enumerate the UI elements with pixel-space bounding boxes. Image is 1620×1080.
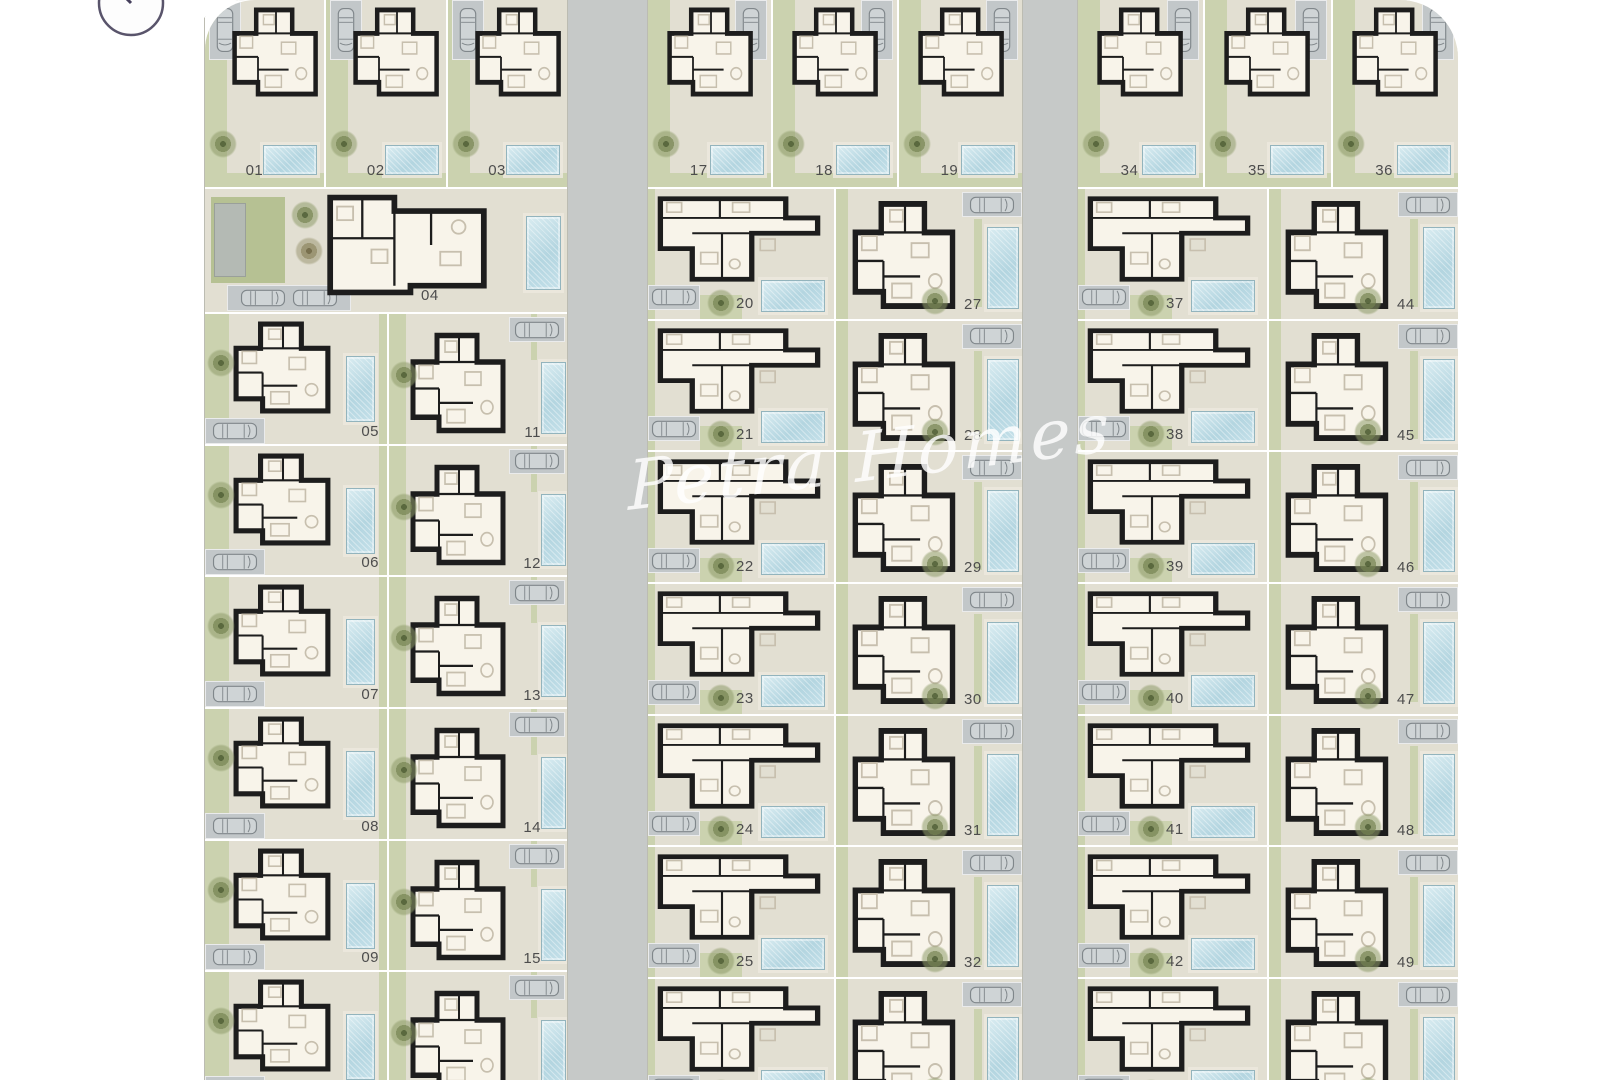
tree-icon — [1353, 681, 1383, 711]
car-icon — [212, 947, 258, 967]
tree-icon — [206, 348, 236, 378]
tree-icon — [1136, 683, 1166, 713]
plot-cell: 09 — [205, 841, 387, 971]
pool — [987, 1017, 1019, 1080]
plot-number-label: 14 — [523, 819, 541, 836]
plot-number-label: 34 — [1121, 162, 1139, 179]
plot-number-label: 29 — [964, 559, 982, 576]
plot-number-label: 01 — [246, 162, 264, 179]
house-footprint — [1096, 5, 1186, 99]
driveway — [1398, 982, 1458, 1007]
tree-icon — [206, 743, 236, 773]
plot-cell: 25 — [648, 847, 834, 977]
driveway — [648, 285, 700, 310]
plot-number-label: 37 — [1166, 295, 1184, 312]
plot-cell: 04 — [205, 189, 567, 312]
plot-cell: 49 — [1269, 847, 1458, 977]
plot-cell: 02 — [326, 0, 445, 187]
car-icon — [651, 419, 697, 439]
plot-cell: 05 — [205, 314, 387, 444]
plot-number-label: 13 — [523, 687, 541, 704]
house-footprint — [1351, 5, 1441, 99]
plot-number-label: 41 — [1166, 821, 1184, 838]
car-icon — [969, 326, 1015, 346]
house-footprint — [352, 5, 442, 99]
plot-cell — [1269, 979, 1458, 1080]
car-icon — [514, 320, 560, 340]
garden-strip — [974, 351, 982, 439]
tree-icon — [206, 480, 236, 510]
plot-number-label: 23 — [736, 690, 754, 707]
plot-cell: 32 — [836, 847, 1022, 977]
plot-cell: 39 — [1078, 452, 1267, 582]
tree-icon — [902, 129, 932, 159]
plot-number-label: 19 — [941, 162, 959, 179]
pool — [346, 1014, 375, 1080]
pool — [1423, 885, 1455, 967]
plot-number-label: 08 — [361, 818, 379, 835]
plot-cell: 46 — [1269, 452, 1458, 582]
car-icon — [1081, 551, 1127, 571]
car-icon — [1405, 721, 1451, 741]
driveway — [962, 850, 1022, 875]
plot-cell: 36 — [1333, 0, 1458, 187]
plot-number-label: 02 — [367, 162, 385, 179]
house-footprint — [1084, 193, 1254, 285]
pool — [987, 227, 1019, 309]
plot-cell: 06 — [205, 446, 387, 576]
tree-icon — [920, 286, 950, 316]
driveway — [1398, 455, 1458, 480]
column-plots-20-26: 20 21 22 23 — [648, 189, 834, 1080]
house-footprint — [231, 5, 321, 99]
pool — [987, 885, 1019, 967]
plot-cell: 24 — [648, 716, 834, 846]
plot-number-label: 11 — [524, 424, 541, 441]
plot-cell: 27 — [836, 189, 1022, 319]
garden-strip — [470, 173, 567, 187]
garden-strip — [1410, 746, 1418, 834]
plot-cell: 11 — [389, 314, 567, 444]
plot-cell: 03 — [448, 0, 567, 187]
pool — [1423, 227, 1455, 309]
tree-icon — [291, 233, 327, 269]
plot-cell — [1078, 979, 1267, 1080]
plot-cell: 10 — [205, 972, 387, 1080]
garden-strip — [974, 1009, 982, 1080]
plot-number-label: 47 — [1397, 691, 1415, 708]
plot-number-label: 27 — [964, 296, 982, 313]
plot-number-label: 32 — [964, 954, 982, 971]
garden-strip — [1269, 189, 1281, 319]
car-icon — [514, 846, 560, 866]
garden-strip — [1355, 173, 1458, 187]
house-footprint — [654, 983, 824, 1075]
left-grid: 05 06 07 08 — [205, 314, 567, 1080]
plot-cell: 31 — [836, 716, 1022, 846]
tree-icon — [1136, 551, 1166, 581]
house-footprint — [321, 193, 493, 297]
car-icon — [969, 458, 1015, 478]
tree-icon — [1208, 129, 1238, 159]
plot-number-label: 05 — [361, 423, 379, 440]
garden-strip — [379, 314, 387, 444]
plot-number-label: 15 — [523, 950, 541, 967]
column-plots-05-10: 05 06 07 08 — [205, 314, 387, 1080]
house-footprint — [232, 977, 334, 1074]
garden-strip — [836, 847, 848, 977]
pool — [987, 490, 1019, 572]
house-footprint — [1084, 983, 1254, 1075]
house-footprint — [1084, 720, 1254, 812]
driveway — [1078, 548, 1130, 573]
plot-number-label: 40 — [1166, 690, 1184, 707]
plot-cell: 14 — [389, 709, 567, 839]
car-icon — [1405, 590, 1451, 610]
driveway — [648, 548, 700, 573]
house-footprint — [474, 5, 564, 99]
driveway — [962, 587, 1022, 612]
plot-cell: 45 — [1269, 321, 1458, 451]
garden-strip — [348, 173, 445, 187]
tree-icon — [287, 197, 323, 233]
driveway — [1078, 680, 1130, 705]
car-icon — [651, 814, 697, 834]
garden-strip — [836, 321, 848, 451]
pool — [1423, 622, 1455, 704]
garden-strip — [974, 746, 982, 834]
plot-number-label: 48 — [1397, 822, 1415, 839]
car-icon — [1081, 419, 1127, 439]
plot-cell — [648, 979, 834, 1080]
plot-number-label: 07 — [361, 686, 379, 703]
car-icon — [514, 978, 560, 998]
compass-north-icon — [94, 0, 168, 40]
house-footprint — [409, 330, 509, 436]
tree-icon — [208, 129, 238, 159]
pool — [346, 751, 375, 817]
garage — [214, 203, 246, 277]
garden-strip — [1100, 173, 1203, 187]
garden-strip — [974, 614, 982, 702]
driveway — [509, 317, 565, 342]
tree-icon — [1081, 129, 1111, 159]
pool — [1423, 1017, 1455, 1080]
driveway — [648, 943, 700, 968]
house-footprint — [409, 857, 509, 963]
house-footprint — [1084, 456, 1254, 548]
car-icon — [212, 421, 258, 441]
house-footprint — [666, 5, 756, 99]
tree-icon — [920, 681, 950, 711]
tree-icon — [389, 360, 419, 390]
house-footprint — [232, 714, 334, 811]
plot-number-label: 49 — [1397, 954, 1415, 971]
plot-cell: 29 — [836, 452, 1022, 582]
plot-number-label: 42 — [1166, 953, 1184, 970]
car-icon — [1405, 195, 1451, 215]
pool — [346, 619, 375, 685]
house-footprint — [232, 582, 334, 679]
plot-cell: 35 — [1205, 0, 1330, 187]
plot-number-label: 30 — [964, 691, 982, 708]
car-icon — [651, 287, 697, 307]
garden-strip — [974, 877, 982, 965]
pool — [1423, 754, 1455, 836]
plot-number-label: 46 — [1397, 559, 1415, 576]
house-footprint — [232, 846, 334, 943]
plot-number-label: 45 — [1397, 427, 1415, 444]
plot-cell: 48 — [1269, 716, 1458, 846]
car-icon — [1405, 326, 1451, 346]
driveway — [648, 680, 700, 705]
garden-strip — [1269, 847, 1281, 977]
house-footprint — [1084, 851, 1254, 943]
house-footprint — [917, 5, 1007, 99]
middle-grid: 20 21 22 23 — [648, 189, 1022, 1080]
pool — [961, 145, 1015, 175]
plot-cell: 38 — [1078, 321, 1267, 451]
plot-number-label: 20 — [736, 295, 754, 312]
car-icon — [514, 583, 560, 603]
driveway — [1078, 811, 1130, 836]
garden-strip — [379, 841, 387, 971]
plot-number-label: 09 — [361, 949, 379, 966]
row-plots-34-36: 34 35 36 — [1078, 0, 1458, 187]
garden-strip — [1269, 716, 1281, 846]
garden-strip — [795, 173, 896, 187]
driveway — [205, 944, 265, 970]
plot-cell: 22 — [648, 452, 834, 582]
driveway — [1078, 943, 1130, 968]
plot-cell: 47 — [1269, 584, 1458, 714]
house-footprint — [232, 319, 334, 416]
plot-number-label: 25 — [736, 953, 754, 970]
tree-icon — [389, 887, 419, 917]
driveway — [962, 455, 1022, 480]
driveway — [509, 975, 565, 1000]
garden-strip — [379, 577, 387, 707]
tree-icon — [1136, 288, 1166, 318]
pool — [541, 757, 566, 829]
house-footprint — [654, 720, 824, 812]
driveway — [1078, 416, 1130, 441]
pool — [346, 883, 375, 949]
pool — [263, 145, 317, 175]
pool — [710, 145, 764, 175]
plot-cell: 37 — [1078, 189, 1267, 319]
plot-cell: 28 — [836, 321, 1022, 451]
road-vertical-left — [567, 0, 648, 1080]
plot-cell: 34 — [1078, 0, 1203, 187]
right-grid: 37 38 39 40 — [1078, 189, 1458, 1080]
pool — [541, 889, 566, 961]
plot-cell: 44 — [1269, 189, 1458, 319]
house-footprint — [232, 451, 334, 548]
garden-strip — [1410, 1009, 1418, 1080]
driveway — [509, 844, 565, 869]
driveway — [1398, 850, 1458, 875]
garden-strip — [1410, 351, 1418, 439]
column-plots-27-33: 27 28 29 30 — [836, 189, 1022, 1080]
garden-strip — [974, 219, 982, 307]
pool — [987, 622, 1019, 704]
pool — [1423, 490, 1455, 572]
driveway — [648, 811, 700, 836]
driveway — [648, 1075, 700, 1080]
plot-cell — [389, 972, 567, 1080]
garden-strip — [1269, 584, 1281, 714]
garden-strip — [836, 979, 848, 1080]
driveway — [1398, 587, 1458, 612]
pool — [541, 494, 566, 566]
car-icon — [212, 684, 258, 704]
tree-icon — [706, 946, 736, 976]
tree-icon — [706, 551, 736, 581]
plot-cell: 08 — [205, 709, 387, 839]
driveway — [205, 418, 265, 444]
pool — [1397, 145, 1451, 175]
car-icon — [969, 721, 1015, 741]
pool — [836, 145, 890, 175]
driveway — [205, 681, 265, 707]
pool — [1142, 145, 1196, 175]
plot-number-label: 35 — [1248, 162, 1266, 179]
garden-strip — [1410, 482, 1418, 570]
driveway — [962, 192, 1022, 217]
tree-icon — [1136, 946, 1166, 976]
garden-strip — [379, 972, 387, 1080]
tree-icon — [206, 875, 236, 905]
plot-number-label: 38 — [1166, 426, 1184, 443]
plot-cell: 19 — [899, 0, 1022, 187]
plot-number-label: 04 — [421, 287, 439, 304]
pool — [346, 488, 375, 554]
car-icon — [212, 552, 258, 572]
tree-icon — [706, 683, 736, 713]
garden-strip — [1227, 173, 1330, 187]
garden-strip — [379, 446, 387, 576]
tree-icon — [920, 944, 950, 974]
plot-number-label: 24 — [736, 821, 754, 838]
garden-strip — [1269, 979, 1281, 1080]
tree-icon — [389, 492, 419, 522]
tree-icon — [1353, 944, 1383, 974]
garden-strip — [379, 709, 387, 839]
car-icon — [1081, 682, 1127, 702]
garden-strip — [227, 173, 324, 187]
car-icon — [1081, 287, 1127, 307]
plot-cell: 30 — [836, 584, 1022, 714]
pool — [346, 356, 375, 422]
house-footprint — [409, 593, 509, 699]
plot-number-label: 36 — [1375, 162, 1393, 179]
column-plots-11-16: 11 12 13 14 — [389, 314, 567, 1080]
house-footprint — [1284, 988, 1392, 1080]
car-icon — [1405, 985, 1451, 1005]
plot-number-label: 21 — [736, 426, 754, 443]
house-footprint — [409, 725, 509, 831]
plot-cell: 41 — [1078, 716, 1267, 846]
car-icon — [651, 551, 697, 571]
garden-strip — [1410, 877, 1418, 965]
driveway — [205, 549, 265, 575]
row-plots-01-03: 01 02 03 — [205, 0, 567, 187]
driveway — [1398, 192, 1458, 217]
plot-cell — [836, 979, 1022, 1080]
driveway — [962, 982, 1022, 1007]
tree-icon — [1336, 129, 1366, 159]
driveway — [962, 719, 1022, 744]
driveway — [962, 324, 1022, 349]
pool — [987, 359, 1019, 441]
driveway — [1078, 1075, 1130, 1080]
car-icon — [969, 853, 1015, 873]
car-icon — [514, 715, 560, 735]
plot-number-label: 18 — [815, 162, 833, 179]
plot-cell: 40 — [1078, 584, 1267, 714]
plot-cell: 01 — [205, 0, 324, 187]
house-footprint — [791, 5, 881, 99]
plot-number-label: 31 — [964, 822, 982, 839]
column-plots-37-43: 37 38 39 40 — [1078, 189, 1267, 1080]
garden-strip — [836, 189, 848, 319]
pool — [1423, 359, 1455, 441]
plot-number-label: 12 — [523, 555, 541, 572]
tree-icon — [389, 755, 419, 785]
plot-cell: 12 — [389, 446, 567, 576]
plot-cell: 21 — [648, 321, 834, 451]
house-footprint — [1084, 588, 1254, 680]
garden-strip — [1269, 452, 1281, 582]
row-plots-17-19: 17 18 19 — [648, 0, 1022, 187]
driveway — [205, 813, 265, 839]
car-icon — [651, 682, 697, 702]
car-icon — [651, 946, 697, 966]
garden-strip — [836, 584, 848, 714]
pool — [987, 754, 1019, 836]
block-right: 34 35 36 37 — [1078, 0, 1458, 1080]
road-vertical-right — [1022, 0, 1078, 1080]
block-left: 01 02 03 — [205, 0, 567, 1080]
garden-strip — [670, 173, 771, 187]
driveway — [1398, 324, 1458, 349]
pool — [541, 625, 566, 697]
driveway — [509, 580, 565, 605]
garden-strip — [1269, 321, 1281, 451]
car-icon — [1081, 946, 1127, 966]
house-footprint — [654, 851, 824, 943]
driveway — [1398, 719, 1458, 744]
car-icon — [969, 195, 1015, 215]
plot-cell: 15 — [389, 841, 567, 971]
car-icon — [969, 590, 1015, 610]
plot-cell: 20 — [648, 189, 834, 319]
plot-number-label: 22 — [736, 558, 754, 575]
house-footprint — [1223, 5, 1313, 99]
car-icon — [514, 451, 560, 471]
driveway — [509, 449, 565, 474]
tree-icon — [706, 288, 736, 318]
car-icon — [1081, 814, 1127, 834]
tree-icon — [651, 129, 681, 159]
pool — [526, 216, 561, 290]
house-footprint — [654, 193, 824, 285]
plot-number-label: 39 — [1166, 558, 1184, 575]
house-footprint — [409, 988, 509, 1080]
pool — [541, 362, 566, 434]
plot-number-label: 44 — [1397, 296, 1415, 313]
